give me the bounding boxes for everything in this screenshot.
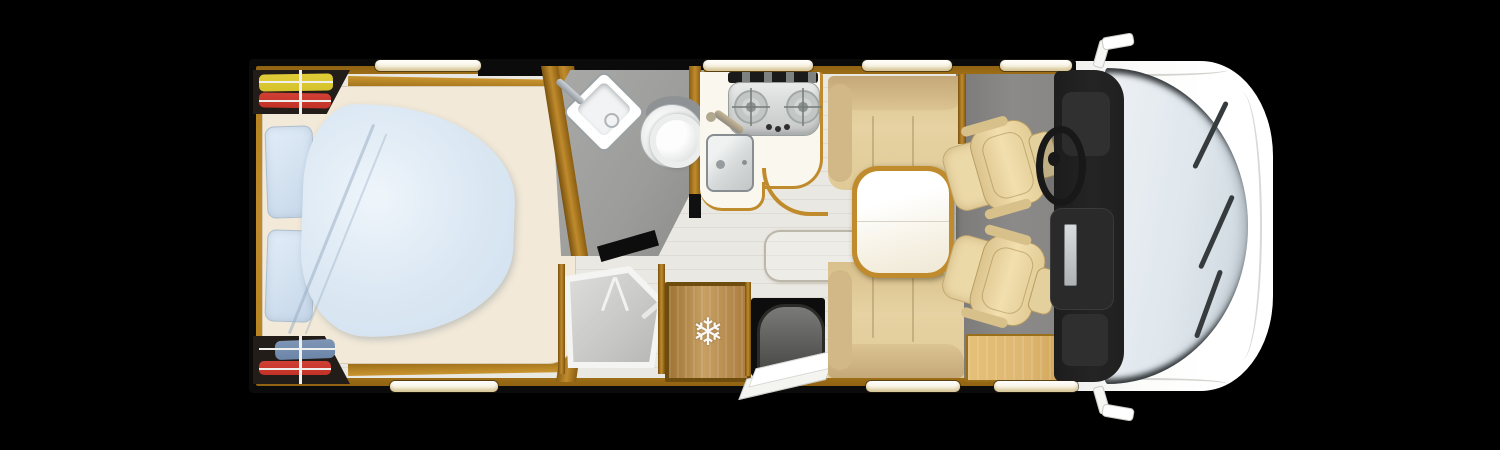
dinette-table: [852, 166, 954, 278]
side-window: [390, 381, 498, 392]
sink-plug: [742, 160, 747, 165]
hanger-rail: [299, 70, 302, 114]
side-window: [862, 60, 952, 71]
cooktop-knob: [784, 124, 790, 130]
bench-cushion-seam: [872, 272, 874, 338]
side-window: [703, 60, 813, 71]
bathroom-door-opening: [689, 194, 701, 218]
side-window: [1000, 60, 1072, 71]
hanger-rail: [259, 81, 333, 83]
table-leaf-seam: [857, 221, 949, 222]
cooktop-knob: [766, 124, 772, 130]
toilet-seat-ring: [650, 114, 704, 168]
hanger-rail: [259, 100, 331, 102]
dinette-tabletop: [857, 171, 949, 273]
sink-drain: [716, 160, 725, 169]
steering-hub: [1048, 152, 1060, 166]
shower-wall-post: [558, 264, 565, 374]
snowflake-icon: ❄: [692, 313, 724, 351]
hanger-rail: [299, 336, 302, 384]
shower-wall-post: [658, 264, 665, 374]
fridge: ❄: [665, 282, 751, 382]
side-window: [866, 381, 960, 392]
side-window: [994, 381, 1078, 392]
cooktop-burner-right: [786, 90, 820, 124]
toilet: [640, 104, 704, 168]
bench-armrest: [828, 270, 852, 370]
floorplan-canvas: ❄: [0, 0, 1500, 450]
cooktop-knob: [775, 126, 781, 132]
side-window: [375, 60, 481, 71]
hanger-rail: [259, 368, 331, 370]
console-vent: [1064, 224, 1077, 286]
steering-wheel: [1036, 126, 1086, 206]
dashboard-lower-panel: [1062, 314, 1108, 366]
cooktop-burner-left: [734, 90, 768, 124]
bench-armrest: [828, 84, 852, 182]
center-console: [1050, 208, 1114, 310]
washbasin-bowl: [576, 81, 633, 138]
wing-mirror-bottom-blade: [1101, 403, 1135, 421]
wing-mirror-top-blade: [1101, 32, 1135, 50]
sink-faucet-base: [706, 112, 716, 122]
bench-cushion-seam: [912, 276, 914, 342]
hanger-rail: [259, 348, 335, 350]
